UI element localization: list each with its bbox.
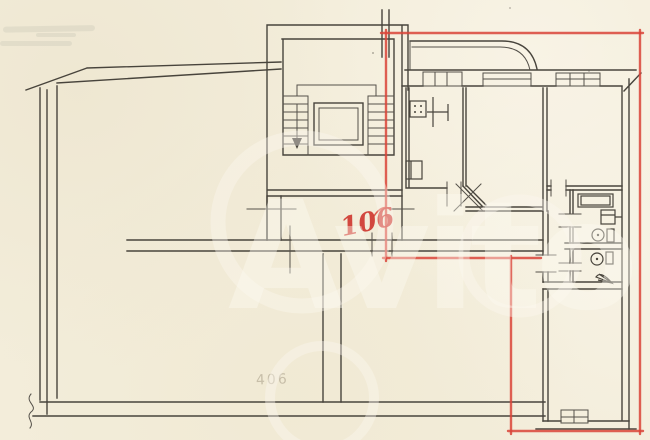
avito-watermark: Avito (218, 138, 633, 440)
floor-plan-svg: 106 406 Avito (0, 0, 650, 440)
dust-specks (372, 7, 590, 72)
scanned-floor-plan: 106 406 Avito (0, 0, 650, 440)
stove-icon (410, 101, 426, 117)
window-icon-lower (561, 410, 588, 423)
paper-break-mark (29, 394, 33, 428)
watermark-ring-3 (270, 346, 374, 440)
vent-shaft-icon (427, 97, 448, 127)
window-icons-top (423, 72, 600, 86)
stamp-smudge (0, 25, 95, 46)
balcony (410, 41, 537, 70)
watermark-text: Avito (228, 170, 633, 344)
